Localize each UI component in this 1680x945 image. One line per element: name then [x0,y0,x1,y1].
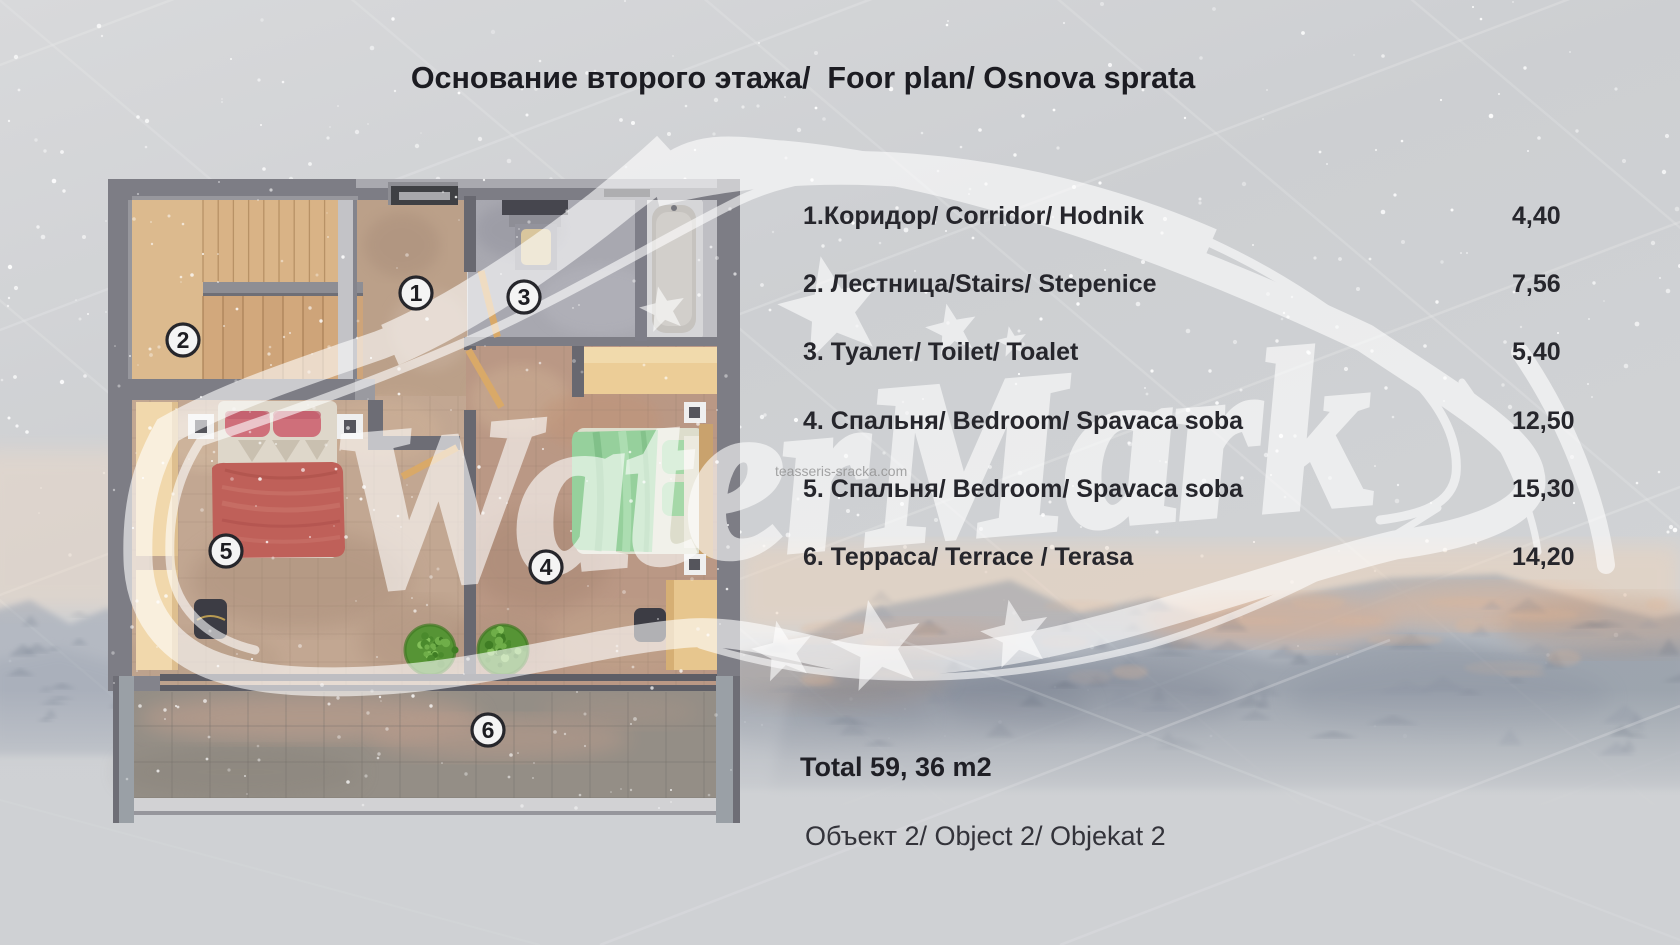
svg-text:6: 6 [482,717,495,743]
svg-text:12,50: 12,50 [1512,407,1575,435]
svg-text:15,30: 15,30 [1512,475,1575,503]
svg-text:1.Коридор/ Corridor/ Hodnik: 1.Коридор/ Corridor/ Hodnik [803,202,1144,230]
svg-text:5. Спальня/ Bedroom/ Spavaca s: 5. Спальня/ Bedroom/ Spavaca soba [803,475,1244,503]
svg-text:4,40: 4,40 [1512,202,1561,230]
svg-text:Total 59, 36 m2: Total 59, 36 m2 [800,752,992,782]
svg-text:2. Лестница/Stairs/ Stepenice: 2. Лестница/Stairs/ Stepenice [803,270,1157,298]
svg-text:14,20: 14,20 [1512,543,1575,571]
svg-text:5: 5 [220,538,233,564]
svg-text:4. Спальня/ Bedroom/ Spavaca s: 4. Спальня/ Bedroom/ Spavaca soba [803,407,1244,435]
svg-text:5,40: 5,40 [1512,338,1561,366]
svg-text:3: 3 [518,284,531,310]
svg-text:Объект 2/ Object 2/ Objekat 2: Объект 2/ Object 2/ Objekat 2 [805,821,1166,851]
svg-text:3. Туалет/ Toilet/ Toalet: 3. Туалет/ Toilet/ Toalet [803,338,1079,366]
svg-text:7,56: 7,56 [1512,270,1561,298]
svg-text:2: 2 [177,327,190,353]
svg-text:4: 4 [540,554,553,580]
svg-text:Основание второго этажа/ Foor: Основание второго этажа/ Foor plan/ Osno… [411,61,1196,95]
svg-text:1: 1 [410,280,423,306]
svg-text:6. Терраса/ Terrace / Terasa: 6. Терраса/ Terrace / Terasa [803,543,1134,571]
